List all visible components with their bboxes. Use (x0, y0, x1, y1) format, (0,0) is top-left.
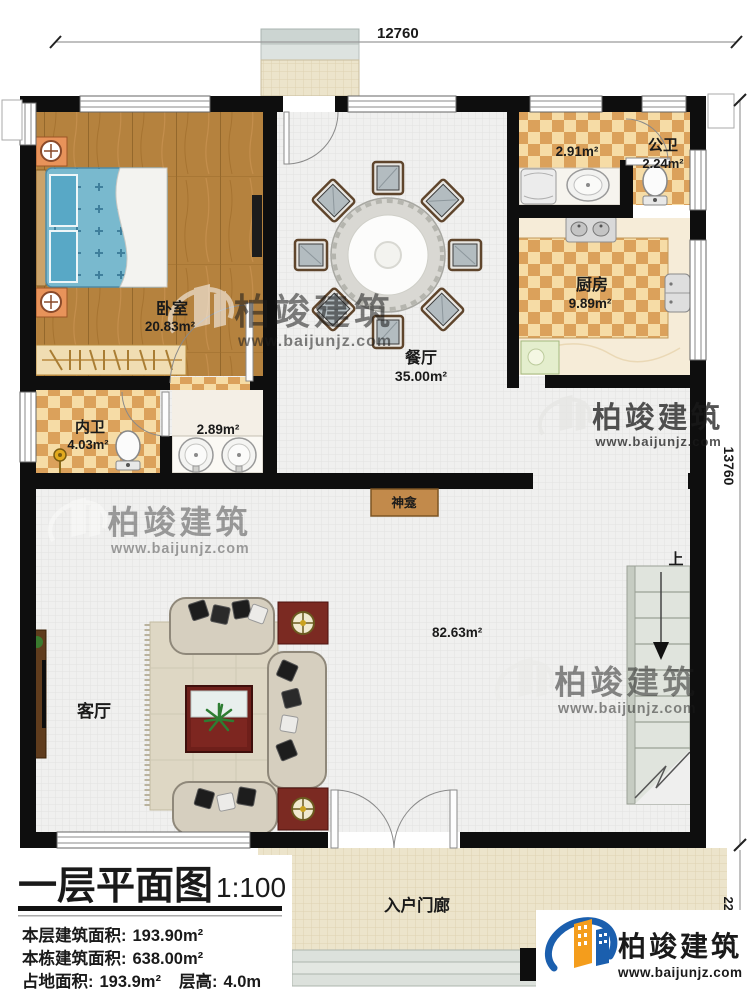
watermark-website: www.baijunjz.com (557, 701, 697, 717)
logo-website: www.baijunjz.com (617, 965, 743, 980)
inner-bath-label: 内卫 (75, 418, 105, 436)
pillow (217, 793, 236, 812)
dimension-right: 13760 (721, 447, 737, 486)
living-label: 客厅 (76, 701, 111, 721)
footprint-value: 193.9m² (100, 973, 162, 991)
floor-area-label: 本层建筑面积: (22, 925, 127, 945)
title-rule-thin (18, 915, 282, 917)
pillow (237, 787, 257, 807)
pillow (280, 715, 299, 734)
vanity-area: 2.89m² (197, 422, 240, 437)
window (530, 96, 602, 112)
shrine-label: 神龛 (391, 495, 417, 510)
pillow (281, 688, 302, 709)
height-value: 4.0m (223, 973, 261, 991)
building-area-value: 638.00m² (133, 950, 204, 968)
window (642, 96, 686, 112)
laundry-area: 2.91m² (556, 144, 599, 159)
tv-icon (42, 660, 46, 728)
bed-headboard (36, 170, 46, 286)
watermark-company: 柏竣建筑 (234, 291, 394, 332)
building-area-line: 本栋建筑面积:638.00m² (22, 948, 204, 968)
bedroom-area: 20.83m² (145, 319, 196, 334)
watermark-company: 柏竣建筑 (592, 401, 723, 435)
pillow (210, 605, 230, 625)
rear-porch-step (261, 44, 359, 60)
stairs-up-label: 上 (668, 551, 683, 568)
title-block: 一层平面图 1:100 本层建筑面积:193.90m² 本栋建筑面积:638.0… (0, 855, 292, 993)
inner-bath-area: 4.03m² (67, 437, 109, 452)
floor-plan-svg: 神龛 柏竣建筑 www.baijunjz.com 柏竣建筑 www.baijun… (0, 0, 750, 993)
laundry-fixtures (519, 166, 667, 205)
bay-window-outline (2, 100, 22, 140)
plan-scale: 1:100 (216, 872, 286, 903)
rear-porch-floor (261, 60, 359, 96)
window (20, 392, 36, 462)
watermark-website: www.baijunjz.com (237, 333, 392, 350)
pillow (50, 175, 77, 226)
dining-area: 35.00m² (395, 368, 447, 384)
height-label: 层高: (179, 971, 218, 991)
window (690, 240, 706, 360)
bay-window-outline (708, 94, 734, 128)
doorway-tile (170, 377, 250, 390)
tv-icon (252, 195, 262, 257)
dining-label: 餐厅 (404, 348, 437, 367)
bedroom-label: 卧室 (156, 299, 188, 318)
window (57, 832, 250, 848)
watermark-website: www.baijunjz.com (594, 434, 721, 449)
plan-title: 一层平面图 (18, 865, 213, 908)
window (348, 96, 456, 112)
footprint-line: 占地面积:193.9m²层高:4.0m (22, 971, 261, 991)
window (690, 150, 706, 210)
building-area-label: 本栋建筑面积: (22, 948, 127, 968)
pillow (50, 231, 77, 282)
shrine: 神龛 (371, 489, 438, 516)
watermark-website: www.baijunjz.com (110, 541, 250, 557)
floor-area-line: 本层建筑面积:193.90m² (22, 925, 204, 945)
footprint-label: 占地面积: (22, 971, 94, 991)
logo-company: 柏竣建筑 (618, 930, 742, 962)
floor-area-value: 193.90m² (133, 927, 204, 945)
watermark-company: 柏竣建筑 (554, 663, 698, 700)
public-bath-area: 2.24m² (642, 156, 684, 171)
window (80, 96, 210, 112)
kitchen-area: 9.89m² (569, 296, 612, 311)
company-logo: 柏竣建筑 www.baijunjz.com (536, 910, 750, 993)
title-rule-thick (18, 906, 282, 911)
entry-porch-label: 入户门廊 (384, 895, 450, 915)
living-area: 82.63m² (432, 625, 483, 640)
floor-plan-page: 神龛 柏竣建筑 www.baijunjz.com 柏竣建筑 www.baijun… (0, 0, 750, 993)
watermark-company: 柏竣建筑 (107, 503, 251, 540)
kitchen-label: 厨房 (576, 275, 608, 294)
public-bath-label: 公卫 (648, 137, 678, 154)
toilet-icon (116, 431, 140, 461)
dimension-top: 12760 (377, 25, 419, 42)
